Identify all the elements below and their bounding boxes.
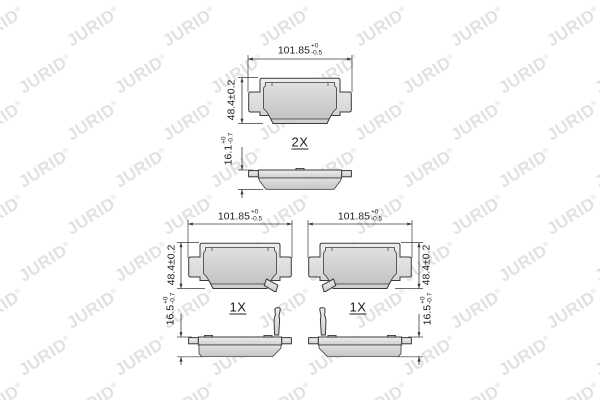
dimension-value: 48.4±0.2 xyxy=(167,245,178,286)
bottom-left-quantity-label: 1X xyxy=(230,300,247,315)
pad-front-view xyxy=(249,78,352,123)
dimension-value: 16.1 xyxy=(224,145,235,165)
dimension-value: 48.4±0.2 xyxy=(227,80,238,121)
tolerance-stack: +0-0.7 xyxy=(222,133,235,144)
top-width-dimension-label: 101.85+0-0.5 xyxy=(278,44,322,59)
pad-side-view xyxy=(249,168,352,189)
dimension-value: 16.5 xyxy=(423,305,434,325)
dimension-value: 101.85 xyxy=(218,212,250,223)
tolerance-stack: +0-0.7 xyxy=(421,293,434,304)
tolerance-lower: -0.7 xyxy=(228,133,235,144)
dimension-value: 101.85 xyxy=(338,212,370,223)
top-thickness-dimension-label: 16.1+0-0.7 xyxy=(222,133,237,166)
technical-drawing-sheet: JURID®JURID®JURID®JURID®JURID®JURID®JURI… xyxy=(0,0,600,400)
bottom-left-thickness-dimension-label: 16.5+0-0.7 xyxy=(164,293,179,326)
tolerance-lower: -0.5 xyxy=(311,50,322,57)
tolerance-stack: +0-0.5 xyxy=(311,44,322,57)
drawing-linework xyxy=(0,0,600,400)
bottom-right-width-dimension-label: 101.85+0-0.5 xyxy=(338,210,382,225)
bottom-right-assembly xyxy=(308,220,423,365)
tolerance-stack: +0-0.5 xyxy=(251,210,262,223)
bottom-left-height-dimension-label: 48.4±0.2 xyxy=(167,245,178,286)
tolerance-stack: +0-0.7 xyxy=(164,293,177,304)
tolerance-stack: +0-0.5 xyxy=(371,210,382,223)
top-quantity-label: 2X xyxy=(292,135,309,150)
bottom-right-quantity-label: 1X xyxy=(350,300,367,315)
top-height-dimension-label: 48.4±0.2 xyxy=(227,80,238,121)
bottom-left-assembly xyxy=(177,220,292,365)
top-assembly xyxy=(238,55,352,198)
tolerance-lower: -0.5 xyxy=(371,216,382,223)
tolerance-lower: -0.7 xyxy=(427,293,434,304)
bottom-right-height-dimension-label: 48.4±0.2 xyxy=(422,245,433,286)
tolerance-lower: -0.7 xyxy=(170,293,177,304)
dimension-value: 101.85 xyxy=(278,46,310,57)
dimension-value: 48.4±0.2 xyxy=(422,245,433,286)
tolerance-lower: -0.5 xyxy=(251,216,262,223)
bottom-right-thickness-dimension-label: 16.5+0-0.7 xyxy=(421,293,436,326)
bottom-left-width-dimension-label: 101.85+0-0.5 xyxy=(218,210,262,225)
dimension-value: 16.5 xyxy=(166,305,177,325)
